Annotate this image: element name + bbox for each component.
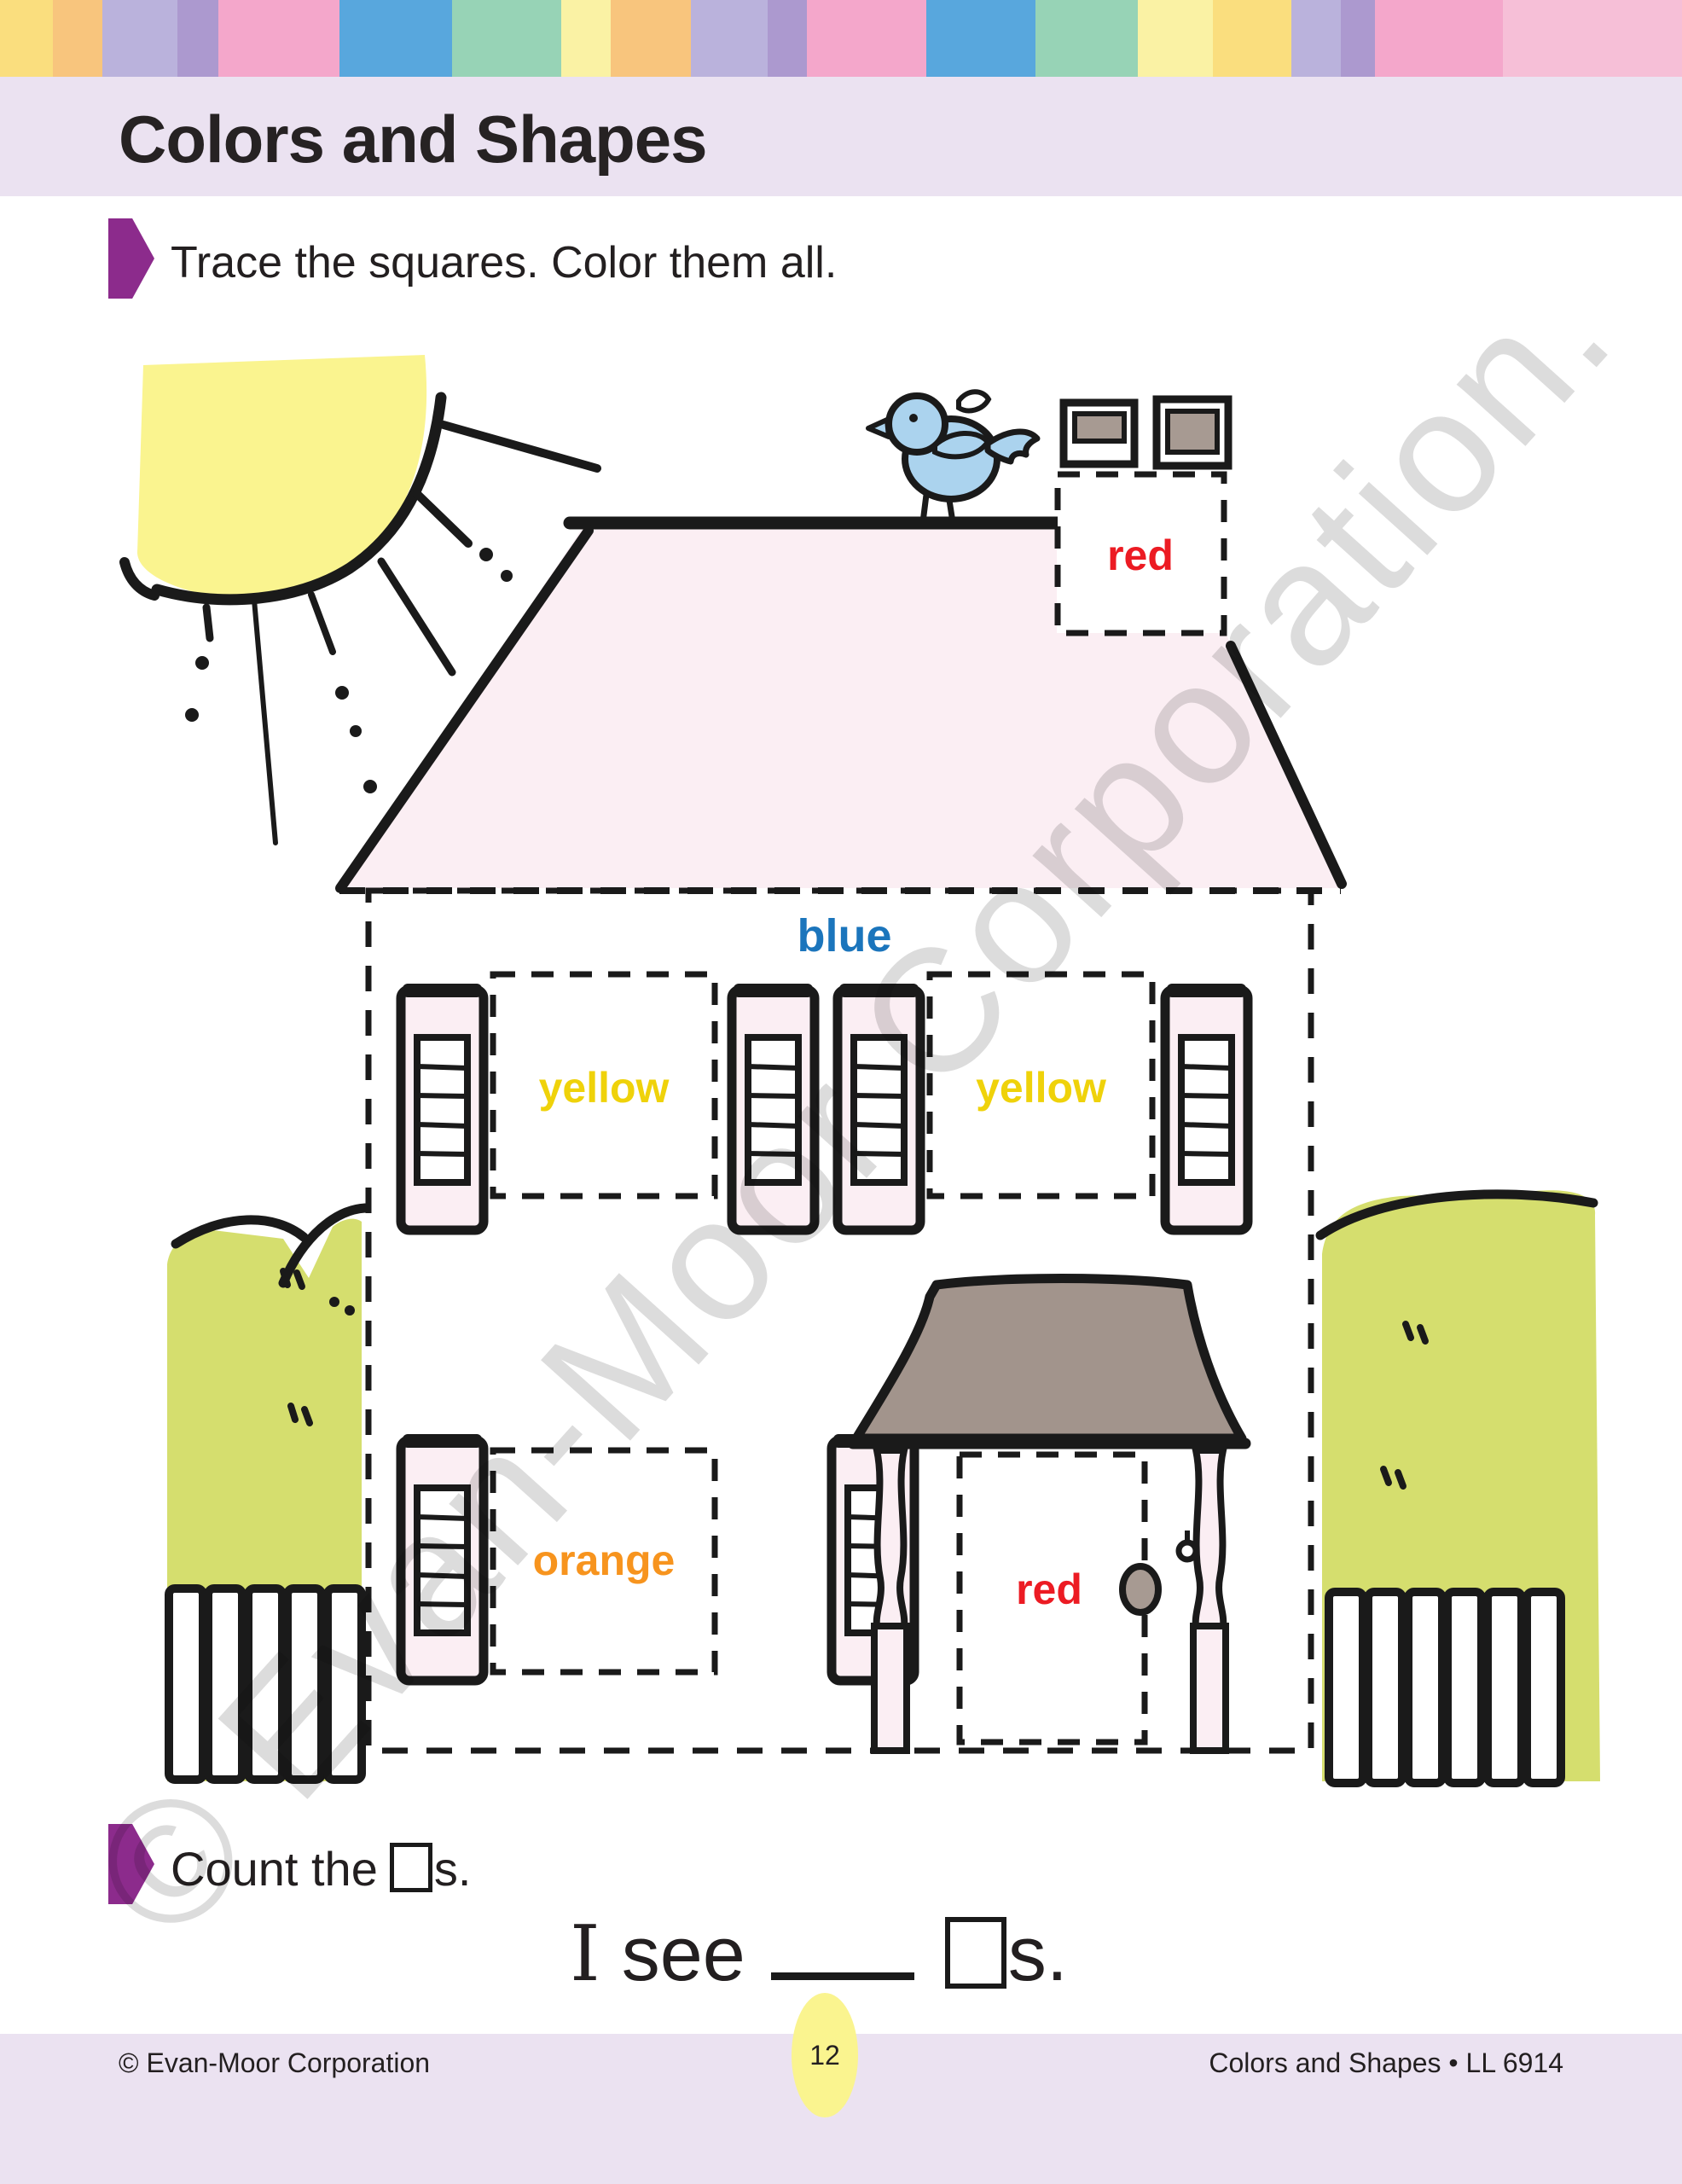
- shutter: [732, 984, 815, 1230]
- house-scene: [0, 0, 1682, 2184]
- porch-column-right: [1193, 1450, 1226, 1751]
- chimney-left: [1064, 403, 1134, 464]
- chimney-right: [1157, 399, 1228, 466]
- porch-awning: [853, 1279, 1245, 1444]
- label-wall-blue: blue: [730, 909, 959, 962]
- shutter: [838, 984, 920, 1230]
- fence-left: [169, 1589, 362, 1780]
- fence-right: [1329, 1592, 1561, 1783]
- porch-column-left: [874, 1450, 907, 1751]
- page-number-badge: 12: [792, 1993, 858, 2117]
- label-chimney-red: red: [1057, 531, 1224, 580]
- shutter: [401, 984, 484, 1230]
- label-window-orange: orange: [493, 1536, 715, 1585]
- label-door-red: red: [968, 1565, 1130, 1614]
- shutter: [1165, 984, 1248, 1230]
- label-window-yellow-right: yellow: [930, 1063, 1152, 1112]
- worksheet-page: Colors and Shapes Trace the squares. Col…: [0, 0, 1682, 2184]
- page-number: 12: [809, 2040, 840, 2071]
- shutter: [401, 1434, 484, 1681]
- label-window-yellow-left: yellow: [493, 1063, 715, 1112]
- bird-illustration: [868, 392, 1037, 522]
